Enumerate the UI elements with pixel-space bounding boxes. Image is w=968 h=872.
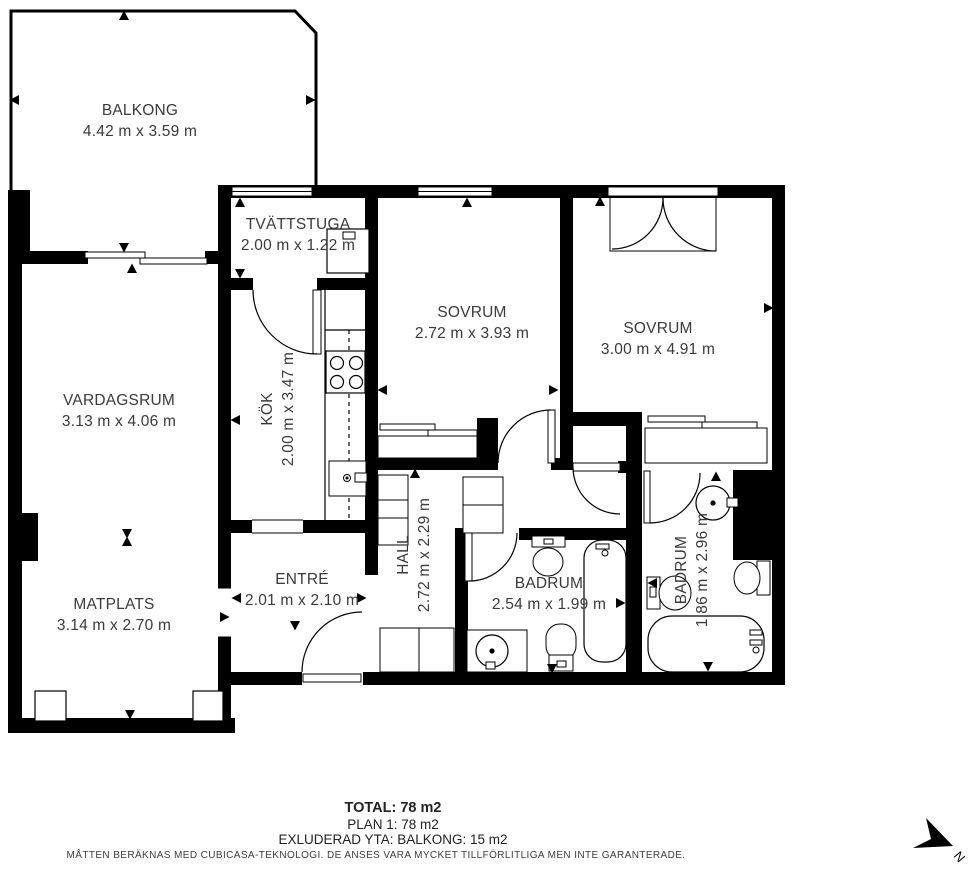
north-label: N [951, 848, 968, 865]
toilet-top-icon [532, 536, 565, 576]
sliding-door-balcony-icon [85, 252, 207, 264]
room-name: TVÄTTSTUGA [241, 214, 355, 235]
room-dims: 2.00 m x 3.47 m [278, 352, 299, 466]
bathroom-sink-1-icon [467, 630, 527, 672]
room-label-sovrum-1: SOVRUM 2.72 m x 3.93 m [415, 302, 529, 344]
room-name: SOVRUM [415, 302, 529, 323]
room-name: HALL [393, 498, 414, 612]
opening-kok-entre [252, 520, 303, 533]
window-matplats-left-icon [35, 691, 66, 721]
window-sovrum1-icon [418, 187, 492, 196]
room-dims: 4.42 m x 3.59 m [83, 121, 197, 142]
room-name: SOVRUM [601, 318, 715, 339]
window-tvattstuga-icon [232, 187, 312, 196]
kitchen-sink-icon [329, 461, 367, 496]
summary-plan: PLAN 1: 78 m2 [0, 817, 786, 832]
room-name: KÖK [257, 352, 278, 466]
closet-hall-upper-icon [463, 477, 503, 533]
room-name: BADRUM [671, 513, 692, 627]
room-dims: 2.72 m x 2.29 m [414, 498, 435, 612]
room-name: BALKONG [83, 100, 197, 121]
room-name: BADRUM [492, 573, 606, 594]
entry-door-icon [302, 612, 362, 685]
summary-excluded-area: EXLUDERAD YTA: BALKONG: 15 m2 [0, 832, 786, 847]
door-hall-icon [573, 463, 620, 514]
toilet-bottom-icon [546, 624, 576, 671]
door-sovrum1-icon [498, 410, 555, 463]
room-dims: 2.54 m x 1.99 m [492, 594, 606, 615]
kitchen-fixtures [325, 229, 369, 520]
room-dims: 2.00 m x 1.22 m [241, 235, 355, 256]
room-dims: 2.01 m x 2.10 m [245, 590, 359, 611]
stove-icon [326, 351, 365, 393]
room-label-badrum-2: BADRUM 1.86 m x 2.96 m [671, 513, 713, 627]
room-name: MATPLATS [57, 594, 171, 615]
room-name: VARDAGSRUM [62, 390, 176, 411]
closet-sovrum1-icon [378, 424, 477, 458]
opening-matplats-entre [218, 588, 231, 637]
room-label-kok: KÖK 2.00 m x 3.47 m [257, 352, 299, 466]
closet-sovrum2-icon [645, 416, 767, 463]
room-label-hall: HALL 2.72 m x 2.29 m [393, 498, 435, 612]
room-dims: 3.00 m x 4.91 m [601, 339, 715, 360]
room-label-sovrum-2: SOVRUM 3.00 m x 4.91 m [601, 318, 715, 360]
floorplan-page: N BALKONG 4.42 m x 3.59 m TVÄTTSTUGA 2.0… [0, 0, 968, 872]
room-label-balkong: BALKONG 4.42 m x 3.59 m [83, 100, 197, 142]
room-label-entre: ENTRÉ 2.01 m x 2.10 m [245, 569, 359, 611]
room-name: ENTRÉ [245, 569, 359, 590]
summary-total: TOTAL: 78 m2 [0, 800, 786, 816]
room-dims: 3.14 m x 2.70 m [57, 615, 171, 636]
toilet-right-icon [734, 561, 770, 595]
room-label-vardagsrum: VARDAGSRUM 3.13 m x 4.06 m [62, 390, 176, 432]
disclaimer-text: MÅTTEN BERÄKNAS MED CUBICASA-TEKNOLOGI. … [0, 850, 752, 861]
room-label-tvattstuga: TVÄTTSTUGA 2.00 m x 1.22 m [241, 214, 355, 256]
room-dims: 2.72 m x 3.93 m [415, 323, 529, 344]
room-label-matplats: MATPLATS 3.14 m x 2.70 m [57, 594, 171, 636]
room-dims: 3.13 m x 4.06 m [62, 411, 176, 432]
window-matplats-right-icon [193, 691, 223, 721]
room-dims: 1.86 m x 2.96 m [692, 513, 713, 627]
north-arrow-icon: N [913, 818, 968, 865]
closet-hall-bottom-icon [380, 628, 454, 672]
room-label-badrum-1: BADRUM 2.54 m x 1.99 m [492, 573, 606, 615]
door-kok-icon [253, 290, 321, 354]
